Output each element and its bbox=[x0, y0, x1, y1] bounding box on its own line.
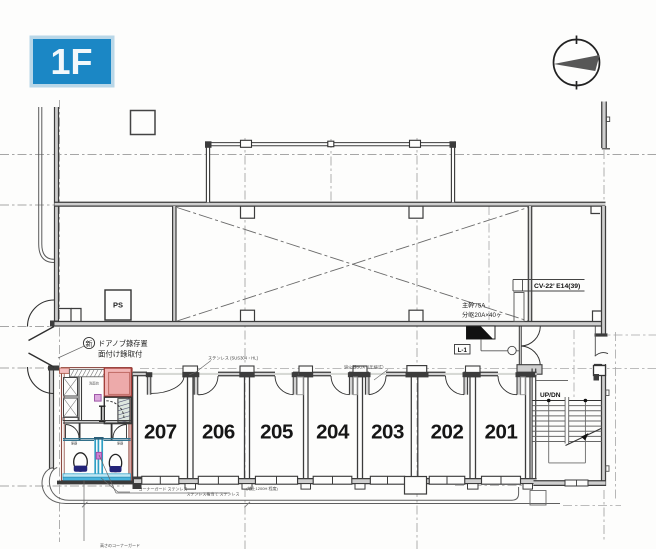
svg-text:高さのコーナーガード: 高さのコーナーガード bbox=[100, 542, 140, 548]
svg-text:ステンレス褚当て ステンレス: ステンレス褚当て ステンレス bbox=[186, 491, 239, 497]
svg-text:PS: PS bbox=[113, 301, 123, 310]
svg-text:洗面台: 洗面台 bbox=[89, 381, 100, 386]
svg-text:UP/DN: UP/DN bbox=[540, 392, 561, 399]
svg-text:分岖20A×40ヶ: 分岖20A×40ヶ bbox=[462, 311, 502, 319]
svg-text:便器: 便器 bbox=[71, 440, 78, 445]
svg-text:206: 206 bbox=[202, 421, 235, 444]
svg-text:203: 203 bbox=[371, 421, 404, 444]
svg-text:201: 201 bbox=[485, 421, 518, 444]
svg-text:コーナーガード ステンレス: コーナーガード ステンレス bbox=[138, 486, 187, 492]
svg-text:便器: 便器 bbox=[117, 440, 124, 445]
svg-text:新: 新 bbox=[86, 339, 93, 348]
svg-text:205: 205 bbox=[260, 421, 293, 444]
svg-text:(地上1200H 程度): (地上1200H 程度) bbox=[246, 485, 278, 491]
svg-text:消火器BOX（圧縮式）: 消火器BOX（圧縮式） bbox=[344, 364, 386, 371]
svg-text:207: 207 bbox=[144, 421, 177, 444]
svg-text:202: 202 bbox=[431, 421, 464, 444]
svg-text:主幹75A: 主幹75A bbox=[462, 302, 486, 310]
svg-text:面付け錄取付: 面付け錄取付 bbox=[98, 349, 143, 358]
svg-text:CV-22ʼ E14(39): CV-22ʼ E14(39) bbox=[534, 283, 580, 290]
svg-text:1F: 1F bbox=[50, 41, 92, 82]
svg-text:204: 204 bbox=[316, 421, 350, 444]
svg-text:L-1: L-1 bbox=[458, 347, 468, 354]
svg-text:ドアノブ錄存置: ドアノブ錄存置 bbox=[98, 339, 148, 348]
